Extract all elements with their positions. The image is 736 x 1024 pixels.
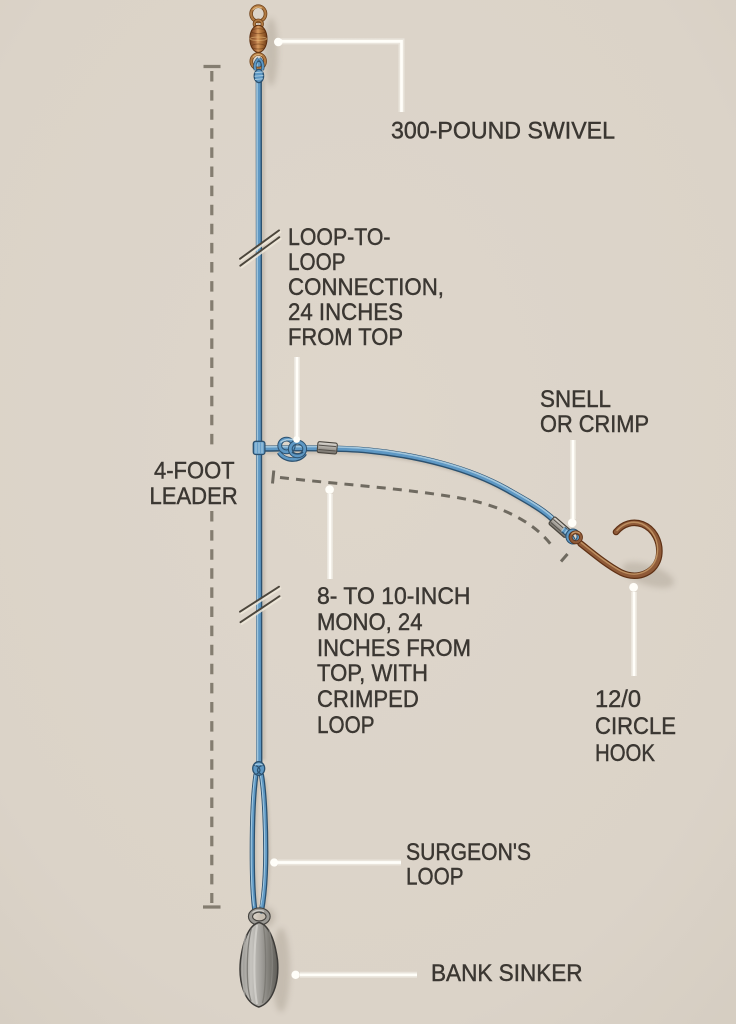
- svg-text:OR CRIMP: OR CRIMP: [540, 411, 649, 438]
- svg-text:CIRCLE: CIRCLE: [595, 713, 676, 740]
- svg-text:SNELL: SNELL: [540, 386, 611, 413]
- svg-text:BANK SINKER: BANK SINKER: [431, 960, 583, 987]
- svg-text:LOOP: LOOP: [288, 249, 346, 276]
- svg-text:4-FOOT: 4-FOOT: [154, 457, 235, 484]
- svg-text:8- TO 10-INCH: 8- TO 10-INCH: [317, 583, 471, 610]
- svg-text:FROM TOP: FROM TOP: [288, 324, 403, 351]
- svg-text:300-POUND SWIVEL: 300-POUND SWIVEL: [391, 117, 615, 144]
- svg-text:LOOP: LOOP: [406, 864, 464, 891]
- svg-text:SURGEON'S: SURGEON'S: [406, 839, 531, 866]
- svg-text:MONO, 24: MONO, 24: [317, 609, 423, 636]
- svg-text:LOOP-TO-: LOOP-TO-: [288, 224, 391, 251]
- svg-text:HOOK: HOOK: [595, 740, 656, 767]
- svg-text:LOOP: LOOP: [317, 712, 375, 739]
- svg-text:INCHES FROM: INCHES FROM: [317, 635, 471, 662]
- svg-text:12/0: 12/0: [595, 686, 641, 713]
- svg-text:CRIMPED: CRIMPED: [317, 686, 419, 713]
- svg-text:CONNECTION,: CONNECTION,: [288, 274, 444, 301]
- svg-text:TOP, WITH: TOP, WITH: [317, 660, 428, 687]
- svg-text:LEADER: LEADER: [150, 483, 238, 510]
- svg-text:24 INCHES: 24 INCHES: [288, 299, 403, 326]
